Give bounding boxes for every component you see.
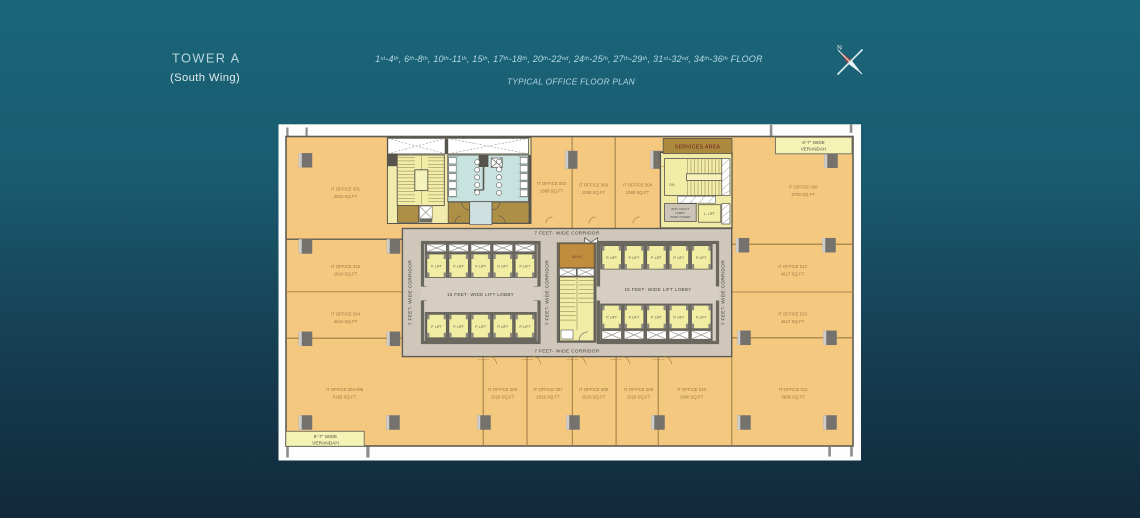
svg-text:IT OFFICE 006: IT OFFICE 006	[488, 387, 518, 392]
svg-text:IT OFFICE 013: IT OFFICE 013	[778, 312, 808, 317]
svg-text:IT OFFICE 004-005: IT OFFICE 004-005	[326, 387, 364, 392]
svg-text:2910 SQ.FT: 2910 SQ.FT	[334, 194, 358, 199]
svg-text:7 FEET- WIDE CORRIDOR: 7 FEET- WIDE CORRIDOR	[721, 260, 727, 325]
svg-text:A.H.U: A.H.U	[572, 255, 582, 259]
svg-text:WIRE TOWER: WIRE TOWER	[670, 215, 691, 219]
svg-text:IT OFFICE 014: IT OFFICE 014	[331, 312, 361, 317]
svg-text:1619 SQ.FT: 1619 SQ.FT	[582, 395, 606, 400]
svg-text:IT OFFICE 002: IT OFFICE 002	[537, 181, 567, 186]
svg-text:4642 SQ.FT: 4642 SQ.FT	[334, 319, 358, 324]
svg-text:IT OFFICE 007: IT OFFICE 007	[533, 387, 563, 392]
svg-text:SERVICES AREA: SERVICES AREA	[675, 145, 721, 151]
svg-text:3936 SQ.FT: 3936 SQ.FT	[781, 395, 805, 400]
svg-text:IT OFFICE 012: IT OFFICE 012	[778, 264, 808, 269]
svg-text:IT OFFICE 010: IT OFFICE 010	[677, 387, 707, 392]
svg-text:IT OFFICE 004: IT OFFICE 004	[623, 183, 653, 188]
svg-text:1619 SQ.FT: 1619 SQ.FT	[491, 395, 515, 400]
svg-text:3730 SQ.FT: 3730 SQ.FT	[791, 192, 815, 197]
svg-text:1619 SQ.FT: 1619 SQ.FT	[536, 395, 560, 400]
svg-text:5195 SQ.FT: 5195 SQ.FT	[333, 395, 357, 400]
svg-text:1080 SQ.FT: 1080 SQ.FT	[626, 190, 650, 195]
svg-text:1980 SQ.FT: 1980 SQ.FT	[680, 395, 704, 400]
svg-text:15 FEET- WIDE LIFT LOBBY: 15 FEET- WIDE LIFT LOBBY	[624, 287, 691, 292]
svg-text:1619 SQ.FT: 1619 SQ.FT	[334, 272, 358, 277]
svg-text:7 FEET- WIDE CORRIDOR: 7 FEET- WIDE CORRIDOR	[534, 349, 599, 355]
svg-text:15 FEET- WIDE LIFT LOBBY: 15 FEET- WIDE LIFT LOBBY	[447, 292, 514, 297]
svg-text:4617 SQ.FT: 4617 SQ.FT	[781, 319, 805, 324]
svg-text:N: N	[837, 45, 842, 52]
svg-text:7 FEET- WIDE CORRIDOR: 7 FEET- WIDE CORRIDOR	[408, 260, 414, 325]
svg-text:7 FEET- WIDE CORRIDOR: 7 FEET- WIDE CORRIDOR	[534, 230, 599, 236]
svg-text:IT OFFICE 001: IT OFFICE 001	[331, 187, 361, 192]
svg-text:VERANDAH: VERANDAH	[801, 147, 827, 152]
svg-text:IT OFFICE 008: IT OFFICE 008	[579, 387, 609, 392]
svg-text:6'-7" WIDE: 6'-7" WIDE	[802, 140, 824, 145]
svg-text:IT OFFICE 009: IT OFFICE 009	[624, 387, 654, 392]
svg-text:IT OFFICE 006: IT OFFICE 006	[788, 185, 818, 190]
svg-text:7 FEET- WIDE CORRIDOR: 7 FEET- WIDE CORRIDOR	[545, 260, 551, 325]
svg-text:6'-7" WIDE: 6'-7" WIDE	[314, 434, 337, 440]
svg-text:IT OFFICE 003: IT OFFICE 003	[579, 183, 609, 188]
svg-text:VERANDAH: VERANDAH	[312, 440, 339, 446]
svg-text:1080 SQ.FT: 1080 SQ.FT	[540, 189, 564, 194]
svg-text:IT OFFICE 015: IT OFFICE 015	[331, 264, 361, 269]
svg-text:1080 SQ.FT: 1080 SQ.FT	[582, 190, 606, 195]
svg-text:1619 SQ.FT: 1619 SQ.FT	[627, 395, 651, 400]
svg-text:4617 SQ.FT: 4617 SQ.FT	[781, 272, 805, 277]
svg-text:TYPICAL OFFICE FLOOR PLAN: TYPICAL OFFICE FLOOR PLAN	[507, 78, 635, 87]
svg-text:TOWER A: TOWER A	[172, 51, 241, 66]
svg-text:DN: DN	[670, 183, 675, 187]
svg-text:IT OFFICE 011: IT OFFICE 011	[779, 387, 808, 392]
svg-text:L. LIFT: L. LIFT	[704, 212, 715, 216]
svg-text:(South Wing): (South Wing)	[170, 72, 240, 84]
